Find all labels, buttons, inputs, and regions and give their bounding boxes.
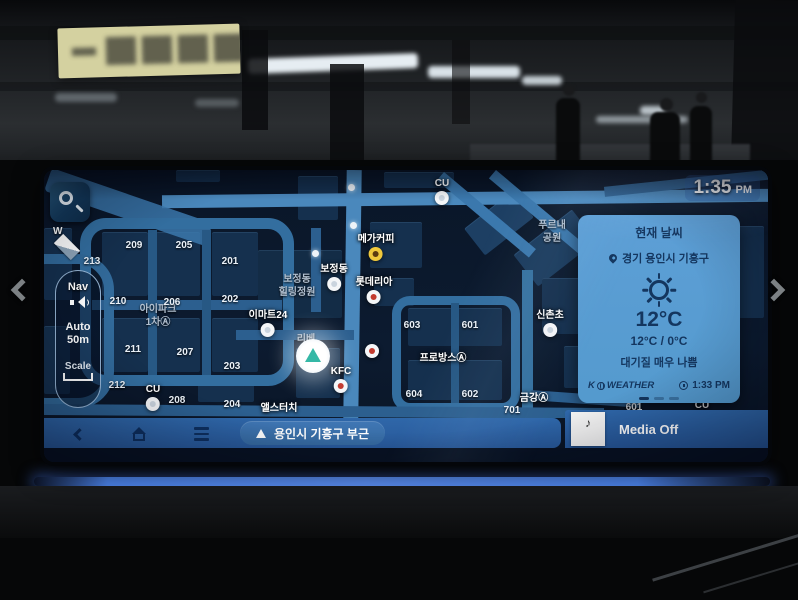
compass-label: W — [49, 226, 85, 237]
map-area-label: 보정동 힐링정원 — [279, 274, 316, 299]
map-poi[interactable]: 보정동 — [320, 260, 348, 291]
poi-marker-icon — [261, 323, 275, 337]
map-road-number: 604 — [406, 389, 423, 400]
weather-updated-time: 1:33 PM — [692, 380, 730, 391]
map-road-number: 205 — [176, 240, 193, 251]
map-poi-label: 보정동 — [320, 260, 348, 275]
weather-location: 경기 용인시 기흥구 — [622, 250, 709, 266]
map-poi-label: 금강Ⓐ — [520, 389, 548, 404]
provider-k: K — [588, 380, 595, 391]
map-road-number: 211 — [125, 344, 141, 355]
poi-marker-icon — [146, 397, 160, 411]
map-road-number: 204 — [224, 399, 241, 410]
map-road-number: 213 — [84, 256, 101, 267]
map-poi-label: 롯데리아 — [356, 273, 393, 288]
weather-footer: K WEATHER 1:33 PM — [588, 380, 730, 391]
poi-marker-icon — [543, 323, 557, 337]
sun-icon — [649, 280, 669, 300]
poi-marker-icon — [365, 344, 379, 358]
map-road-number: 201 — [222, 256, 239, 267]
map-road-number: 601 — [462, 320, 479, 331]
weather-air-quality: 대기질 매우 나쁨 — [621, 354, 698, 370]
map-poi[interactable]: CU — [146, 384, 160, 411]
map-poi-label: 앨스터치 — [261, 399, 298, 414]
map-poi-label: CU — [146, 384, 160, 395]
map-poi[interactable]: 메가커피 — [358, 230, 395, 261]
poi-marker-icon — [369, 247, 383, 261]
map-poi-label: 신촌초 — [536, 306, 564, 321]
bottom-bar-shadow — [44, 448, 768, 462]
chevron-right-icon — [763, 279, 786, 302]
garage-scene — [0, 0, 798, 172]
person-silhouette — [650, 98, 682, 168]
music-note-icon: ♪ — [585, 416, 591, 430]
widget-page-dots — [578, 397, 740, 400]
ceiling-light — [428, 66, 520, 78]
dashboard-face — [0, 486, 798, 538]
heading-arrow-icon — [305, 348, 321, 362]
garage-pillar — [452, 40, 470, 124]
poi-marker-icon — [334, 379, 348, 393]
clock-meridiem: PM — [736, 184, 753, 196]
person-silhouette — [690, 92, 714, 170]
map-control-pill: Nav Auto 50m Scale — [55, 270, 101, 408]
map-road-number: 602 — [462, 389, 479, 400]
hamburger-menu-icon — [194, 427, 209, 440]
map-road-number: 208 — [169, 395, 186, 406]
provider-weather: WEATHER — [607, 380, 654, 391]
map-poi-label: CU — [435, 178, 449, 189]
map-road-number: 206 — [164, 297, 181, 308]
scale-button[interactable]: Scale — [63, 361, 93, 381]
map-poi[interactable]: 롯데리아 — [356, 273, 393, 304]
map-poi-label: KFC — [331, 366, 352, 377]
garage-sign — [57, 24, 240, 79]
search-icon — [59, 191, 73, 205]
map-poi[interactable]: 신촌초 — [536, 306, 564, 337]
map-road-number: 603 — [404, 320, 421, 331]
ceiling-beam — [0, 82, 798, 91]
carousel-prev-button[interactable] — [8, 278, 34, 304]
map-poi[interactable]: 프로방스Ⓐ — [420, 349, 467, 364]
photo-frame: 푸르내 공원보정동 힐링정원아이파크 1차Ⓐ리베 320920521320121… — [0, 0, 798, 600]
status-clock: 1:35 PM — [685, 175, 760, 201]
map-road-number: 210 — [110, 296, 127, 307]
map-poi-label: 이마트24 — [249, 306, 288, 321]
weather-temperature: 12°C — [636, 308, 683, 332]
ceiling-light — [55, 93, 117, 102]
map-road-number: 203 — [224, 361, 241, 372]
nav-arrow-icon — [256, 429, 266, 438]
weather-updated: 1:33 PM — [679, 380, 730, 391]
search-button[interactable] — [50, 182, 90, 222]
home-icon — [131, 428, 147, 441]
carousel-next-button[interactable] — [760, 278, 786, 304]
chevron-left-icon — [11, 279, 34, 302]
ambient-light-strip — [34, 477, 770, 486]
speaker-icon[interactable] — [70, 296, 86, 309]
weather-widget[interactable]: 현재 날씨 경기 용인시 기흥구 12°C 12°C / 0°C 대기질 매우 … — [578, 215, 740, 403]
location-pin-icon — [607, 252, 618, 263]
nav-volume-label[interactable]: Nav — [68, 281, 88, 293]
weather-title: 현재 날씨 — [635, 224, 683, 241]
home-button[interactable] — [124, 422, 154, 446]
map-poi[interactable]: 앨스터치 — [261, 399, 298, 414]
map-road-number: 202 — [222, 294, 239, 305]
ceiling-light — [195, 99, 239, 107]
scale-label: Scale — [65, 361, 91, 372]
map-poi[interactable]: 금강Ⓐ — [520, 389, 548, 404]
poi-marker-icon — [367, 290, 381, 304]
map-poi[interactable] — [365, 342, 379, 358]
auto-scale-button[interactable]: Auto 50m — [65, 321, 90, 347]
map-poi-label: 메가커피 — [358, 230, 395, 245]
weather-location-row: 경기 용인시 기흥구 — [609, 250, 709, 266]
back-icon — [73, 428, 86, 441]
media-artwork: ♪ — [571, 412, 605, 446]
map-area-label: 푸르내 공원 — [538, 220, 566, 245]
compass-icon — [54, 234, 80, 260]
scale-bar-icon — [63, 374, 93, 381]
map-road-number: 207 — [177, 347, 194, 358]
current-location-pill[interactable]: 용인시 기흥구 부근 — [240, 421, 385, 445]
media-status-label: Media Off — [619, 422, 678, 437]
poi-marker-icon — [435, 191, 449, 205]
garage-pillar — [242, 30, 268, 130]
current-location-text: 용인시 기흥구 부근 — [274, 425, 369, 442]
weather-globe-icon — [597, 382, 605, 390]
map-road-number: 212 — [109, 380, 126, 391]
menu-button[interactable] — [186, 422, 216, 446]
person-silhouette — [556, 84, 582, 168]
infotainment-screen: 푸르내 공원보정동 힐링정원아이파크 1차Ⓐ리베 320920521320121… — [44, 170, 768, 462]
weather-provider: K WEATHER — [588, 380, 654, 391]
map-poi[interactable]: 이마트24 — [249, 306, 288, 337]
map-poi[interactable]: CU — [435, 178, 449, 205]
clock-icon — [679, 381, 688, 390]
current-position-marker — [296, 339, 330, 373]
weather-range: 12°C / 0°C — [631, 334, 688, 348]
garage-pillar — [330, 64, 364, 172]
map-poi-label: 프로방스Ⓐ — [420, 349, 467, 364]
poi-marker-icon — [327, 277, 341, 291]
compass-button[interactable]: W — [49, 226, 85, 259]
map-road-number: 209 — [126, 240, 143, 251]
map-poi[interactable]: KFC — [331, 366, 352, 393]
map-road-number: 701 — [504, 405, 521, 416]
media-widget[interactable]: ♪ Media Off — [565, 410, 768, 448]
clock-time: 1:35 — [693, 177, 731, 199]
back-button[interactable] — [64, 422, 94, 446]
